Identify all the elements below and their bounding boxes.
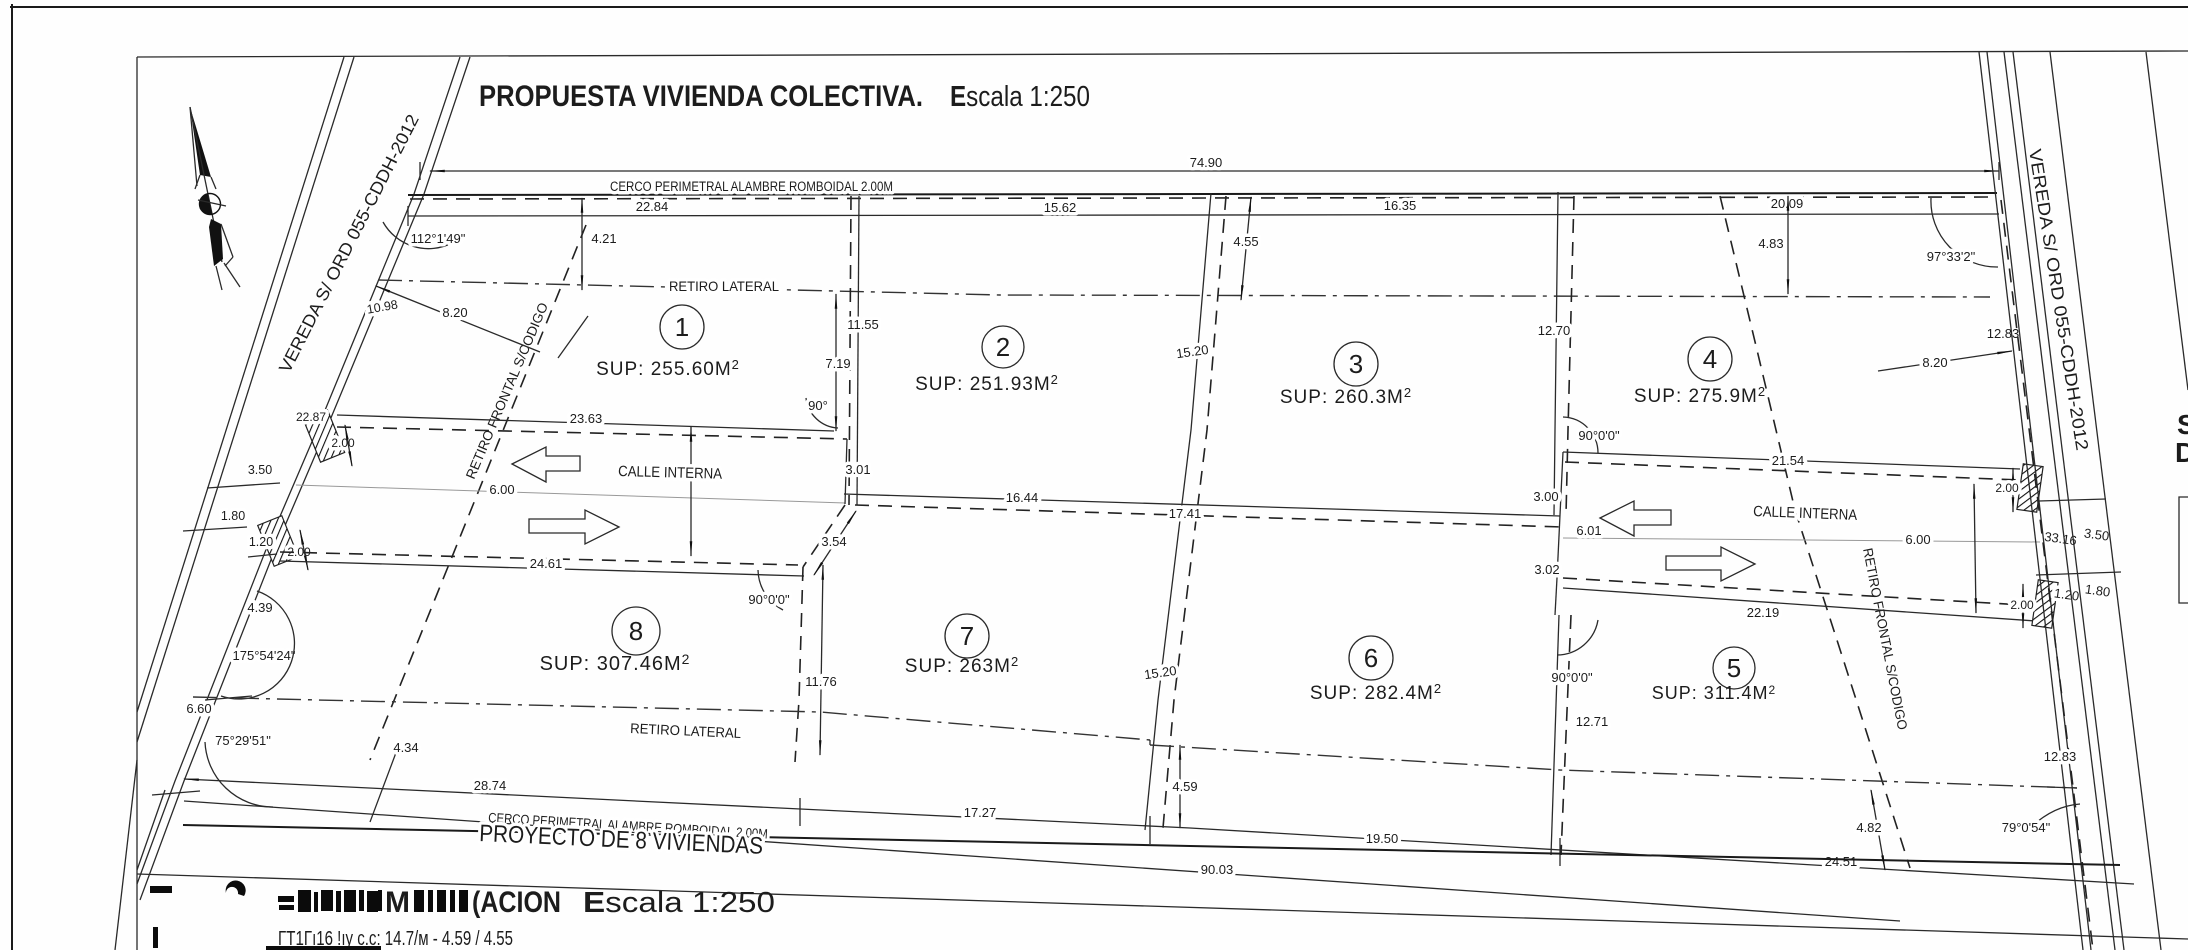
- svg-text:11.55: 11.55: [847, 317, 879, 332]
- svg-text:75°29'51": 75°29'51": [215, 733, 271, 748]
- svg-text:2.00: 2.00: [1995, 481, 2019, 495]
- svg-text:SUP: 260.3M2: SUP: 260.3M2: [1280, 385, 1412, 408]
- svg-text:1.80: 1.80: [221, 509, 245, 523]
- svg-text:2.00: 2.00: [331, 436, 355, 450]
- svg-text:6.01: 6.01: [1576, 523, 1601, 538]
- svg-text:16.44: 16.44: [1006, 490, 1039, 505]
- svg-text:90°0'0": 90°0'0": [1578, 428, 1620, 443]
- svg-text:7.19: 7.19: [825, 356, 850, 371]
- svg-text:74.90: 74.90: [1190, 155, 1223, 170]
- svg-text:4.83: 4.83: [1758, 236, 1783, 251]
- svg-text:3.02: 3.02: [1534, 562, 1559, 577]
- svg-text:6: 6: [1364, 643, 1378, 673]
- svg-text:17.27: 17.27: [964, 805, 997, 820]
- svg-text:4.82: 4.82: [1856, 820, 1881, 835]
- svg-text:4.59: 4.59: [1172, 779, 1197, 794]
- svg-text:SUP: 263M2: SUP: 263M2: [905, 654, 1019, 677]
- svg-text:97°33'2": 97°33'2": [1927, 249, 1976, 264]
- svg-text:22.84: 22.84: [636, 199, 669, 214]
- svg-text:CALLE INTERNA: CALLE INTERNA: [618, 463, 722, 483]
- svg-text:1.20: 1.20: [249, 535, 273, 549]
- svg-text:RETIRO LATERAL: RETIRO LATERAL: [669, 278, 779, 294]
- svg-text:90°0'0": 90°0'0": [1551, 670, 1593, 685]
- svg-text:112°1'49": 112°1'49": [411, 231, 466, 246]
- svg-text:S: S: [2177, 409, 2188, 440]
- svg-text:3.54: 3.54: [821, 534, 846, 549]
- svg-text:21.54: 21.54: [1772, 453, 1805, 468]
- svg-text:4.39: 4.39: [247, 600, 272, 615]
- svg-text:4.21: 4.21: [591, 231, 616, 246]
- svg-text:SUP: 311.4M2: SUP: 311.4M2: [1652, 683, 1776, 703]
- svg-text:8.20: 8.20: [442, 305, 467, 320]
- svg-text:SUP: 275.9M2: SUP: 275.9M2: [1634, 384, 1766, 407]
- svg-text:M: M: [385, 886, 410, 919]
- svg-text:12.83: 12.83: [1987, 326, 2020, 341]
- svg-text:20.09: 20.09: [1771, 196, 1804, 211]
- svg-text:22.19: 22.19: [1747, 605, 1780, 620]
- svg-text:3.50: 3.50: [248, 463, 272, 477]
- svg-text:3: 3: [1349, 349, 1363, 379]
- svg-text:79°0'54": 79°0'54": [2002, 820, 2051, 835]
- svg-text:90.03: 90.03: [1201, 862, 1234, 877]
- svg-text:11.76: 11.76: [805, 674, 837, 689]
- svg-text:SUP: 255.60M2: SUP: 255.60M2: [596, 357, 740, 380]
- svg-text:90°: 90°: [808, 398, 828, 413]
- svg-text:15.62: 15.62: [1044, 200, 1077, 215]
- svg-text:SUP: 251.93M2: SUP: 251.93M2: [915, 372, 1059, 395]
- svg-text:12.83: 12.83: [2044, 749, 2077, 764]
- svg-text:Escala 1:250: Escala 1:250: [950, 81, 1090, 113]
- svg-text:24.51: 24.51: [1825, 854, 1858, 869]
- svg-text:SUP: 282.4M2: SUP: 282.4M2: [1310, 681, 1442, 704]
- svg-text:24.61: 24.61: [530, 556, 563, 571]
- svg-text:5: 5: [1727, 653, 1741, 683]
- svg-text:2.00: 2.00: [2010, 598, 2034, 612]
- svg-text:90°0'0": 90°0'0": [748, 592, 790, 607]
- svg-text:22.87: 22.87: [296, 410, 326, 424]
- svg-text:SUP: 307.46M2: SUP: 307.46M2: [540, 651, 691, 675]
- svg-text:23.63: 23.63: [570, 411, 603, 426]
- svg-text:28.74: 28.74: [474, 778, 507, 793]
- svg-text:D: D: [2175, 437, 2188, 468]
- svg-text:3.01: 3.01: [845, 462, 870, 477]
- svg-text:175°54'24": 175°54'24": [233, 648, 296, 663]
- svg-text:CERCO PERIMETRAL ALAMBRE ROMBO: CERCO PERIMETRAL ALAMBRE ROMBOIDAL 2.00M: [610, 179, 893, 194]
- svg-text:PROPUESTA VIVIENDA COLECTIVA.: PROPUESTA VIVIENDA COLECTIVA.: [479, 80, 923, 113]
- svg-text:3.00: 3.00: [1533, 489, 1558, 504]
- svg-text:17.41: 17.41: [1169, 506, 1202, 521]
- svg-text:16.35: 16.35: [1384, 198, 1417, 213]
- svg-text:6.60: 6.60: [186, 701, 211, 716]
- svg-text:7: 7: [960, 621, 974, 651]
- svg-text:6.00: 6.00: [489, 482, 514, 497]
- svg-text:6.00: 6.00: [1905, 532, 1930, 547]
- svg-text:12.70: 12.70: [1538, 323, 1571, 338]
- svg-text:2: 2: [996, 332, 1010, 362]
- svg-text:Escala 1:250: Escala 1:250: [583, 887, 775, 919]
- svg-text:19.50: 19.50: [1366, 831, 1399, 846]
- svg-text:1: 1: [675, 312, 689, 342]
- svg-text:4.55: 4.55: [1233, 234, 1258, 249]
- svg-text:4.34: 4.34: [393, 740, 418, 755]
- svg-text:8: 8: [629, 616, 643, 646]
- svg-text:8.20: 8.20: [1922, 355, 1947, 370]
- svg-text:4: 4: [1703, 344, 1717, 374]
- svg-text:12.71: 12.71: [1576, 714, 1609, 729]
- svg-text:(ACION: (ACION: [472, 886, 561, 919]
